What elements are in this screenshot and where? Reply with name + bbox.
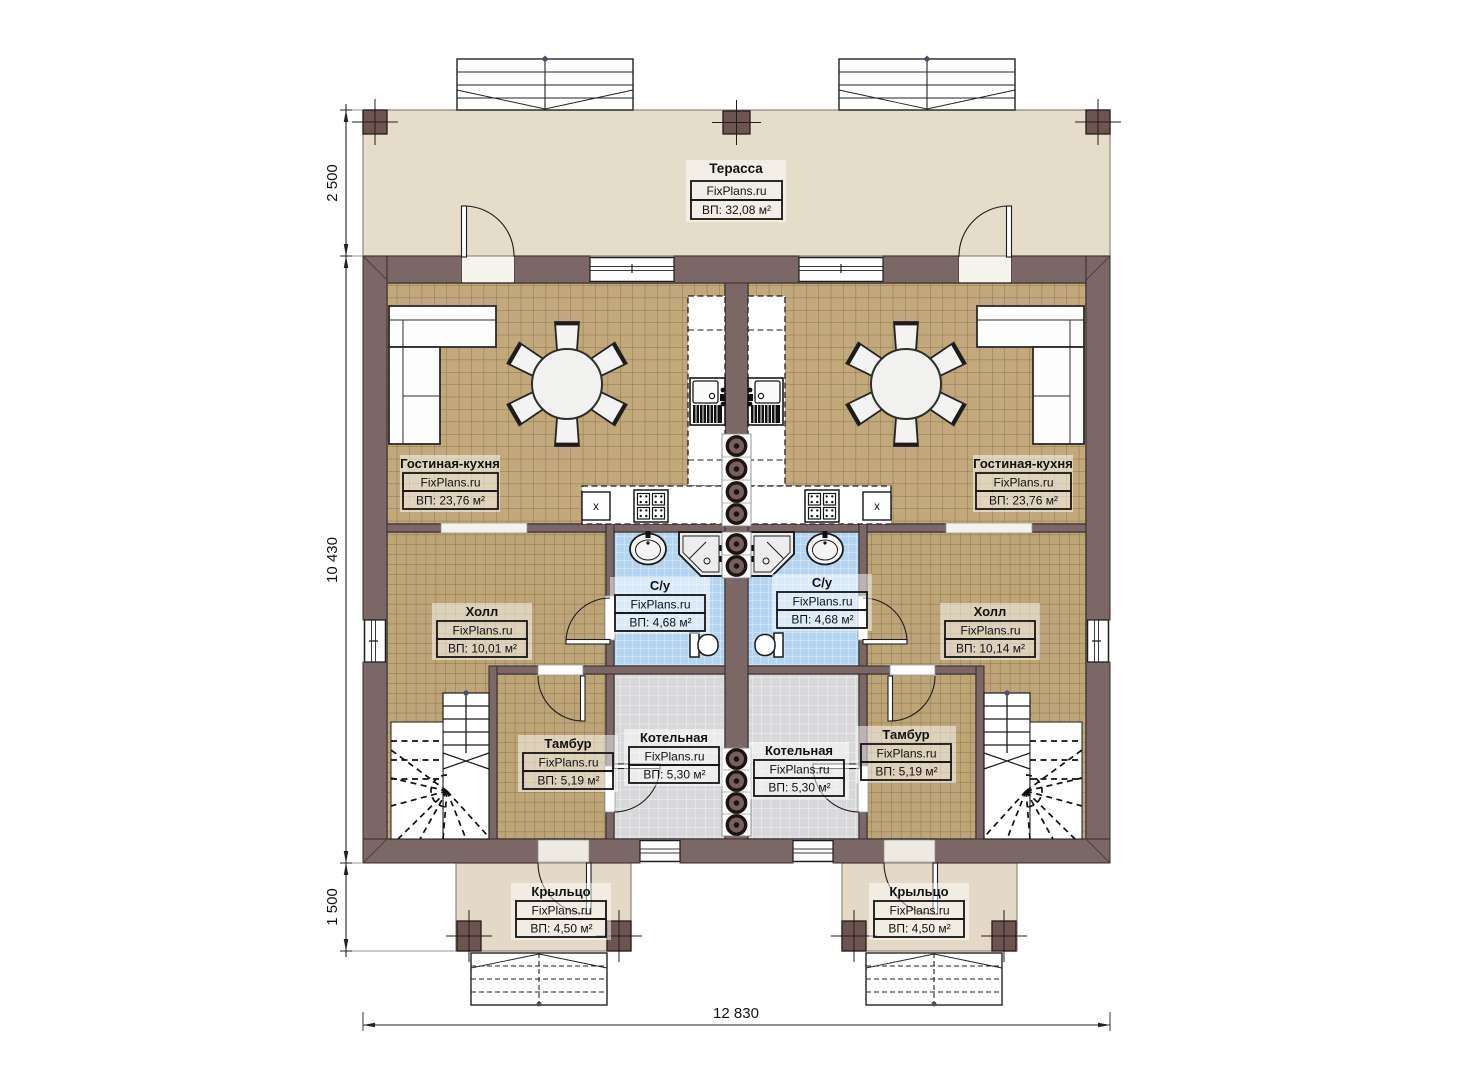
svg-text:FixPlans.ru: FixPlans.ru	[876, 747, 936, 761]
svg-text:ВП: 5,30 м²: ВП: 5,30 м²	[643, 768, 705, 782]
svg-text:Холл: Холл	[974, 604, 1007, 619]
svg-text:ВП: 32,08 м²: ВП: 32,08 м²	[702, 203, 771, 217]
svg-text:Котельная: Котельная	[765, 743, 833, 758]
svg-text:ВП: 5,30 м²: ВП: 5,30 м²	[768, 781, 830, 795]
svg-text:ВП: 23,76 м²: ВП: 23,76 м²	[416, 494, 485, 508]
svg-text:Терасса: Терасса	[709, 161, 763, 176]
svg-text:1 500: 1 500	[324, 888, 341, 926]
svg-text:12 830: 12 830	[713, 1005, 759, 1022]
svg-text:ВП: 5,19 м²: ВП: 5,19 м²	[875, 765, 937, 779]
svg-text:С/у: С/у	[650, 578, 671, 593]
svg-text:Гостиная-кухня: Гостиная-кухня	[400, 456, 500, 471]
svg-text:FixPlans.ru: FixPlans.ru	[792, 595, 852, 609]
svg-text:Котельная: Котельная	[640, 730, 708, 745]
svg-text:ВП: 10,01 м²: ВП: 10,01 м²	[448, 642, 517, 656]
svg-text:С/у: С/у	[812, 575, 833, 590]
svg-text:Гостиная-кухня: Гостиная-кухня	[973, 456, 1073, 471]
svg-text:FixPlans.ru: FixPlans.ru	[706, 184, 766, 198]
svg-text:FixPlans.ru: FixPlans.ru	[420, 476, 480, 490]
svg-text:Крыльцо: Крыльцо	[531, 884, 590, 899]
svg-text:ВП: 5,19 м²: ВП: 5,19 м²	[537, 774, 599, 788]
svg-text:FixPlans.ru: FixPlans.ru	[889, 904, 949, 918]
svg-text:x: x	[593, 501, 599, 513]
svg-text:FixPlans.ru: FixPlans.ru	[538, 756, 598, 770]
svg-text:Тамбур: Тамбур	[544, 736, 591, 751]
svg-text:ВП: 4,68 м²: ВП: 4,68 м²	[629, 616, 691, 630]
svg-text:Крыльцо: Крыльцо	[889, 884, 948, 899]
svg-text:2 500: 2 500	[324, 164, 341, 202]
svg-text:ВП: 10,14 м²: ВП: 10,14 м²	[956, 642, 1025, 656]
svg-text:FixPlans.ru: FixPlans.ru	[993, 476, 1053, 490]
svg-text:FixPlans.ru: FixPlans.ru	[960, 624, 1020, 638]
svg-text:Холл: Холл	[466, 604, 499, 619]
svg-text:Тамбур: Тамбур	[882, 727, 929, 742]
svg-text:FixPlans.ru: FixPlans.ru	[769, 763, 829, 777]
svg-text:FixPlans.ru: FixPlans.ru	[452, 624, 512, 638]
svg-text:ВП: 23,76 м²: ВП: 23,76 м²	[989, 494, 1058, 508]
svg-text:ВП: 4,68 м²: ВП: 4,68 м²	[791, 613, 853, 627]
svg-text:10 430: 10 430	[324, 537, 341, 583]
svg-text:FixPlans.ru: FixPlans.ru	[531, 904, 591, 918]
svg-text:FixPlans.ru: FixPlans.ru	[644, 750, 704, 764]
svg-text:ВП: 4,50 м²: ВП: 4,50 м²	[888, 922, 950, 936]
svg-text:x: x	[874, 501, 880, 513]
svg-text:ВП: 4,50 м²: ВП: 4,50 м²	[530, 922, 592, 936]
svg-text:FixPlans.ru: FixPlans.ru	[630, 598, 690, 612]
